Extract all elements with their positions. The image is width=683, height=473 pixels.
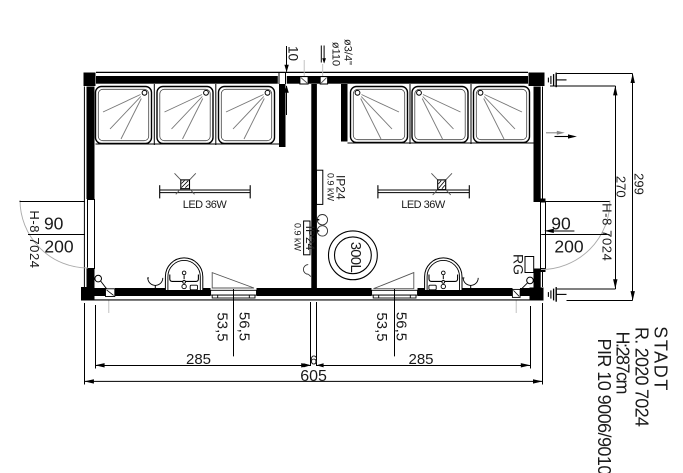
svg-text:STADT: STADT (651, 326, 671, 392)
svg-text:53,5: 53,5 (373, 312, 390, 341)
svg-text:PIR 10 9006/9010: PIR 10 9006/9010 (594, 339, 614, 473)
svg-text:R. 2020 7024: R. 2020 7024 (632, 327, 652, 427)
svg-text:RG: RG (510, 254, 526, 275)
svg-text:ø110: ø110 (329, 42, 341, 66)
svg-text:0.9 kW: 0.9 kW (292, 223, 302, 252)
svg-text:H-8 7024: H-8 7024 (27, 210, 42, 268)
svg-text:285: 285 (186, 351, 211, 368)
svg-text:H:287cm: H:287cm (613, 332, 633, 394)
svg-text:53,5: 53,5 (214, 312, 231, 341)
svg-text:299: 299 (631, 173, 646, 195)
svg-text:LED 36W: LED 36W (183, 199, 228, 211)
svg-text:200: 200 (44, 236, 73, 256)
svg-text:90: 90 (44, 213, 64, 233)
svg-text:IP24: IP24 (303, 226, 317, 251)
svg-text:0.9 kW: 0.9 kW (325, 173, 335, 202)
svg-text:605: 605 (300, 368, 327, 385)
svg-text:ø3/4": ø3/4" (342, 39, 354, 65)
svg-text:H-8 7024: H-8 7024 (599, 203, 614, 261)
svg-text:56,5: 56,5 (236, 312, 253, 341)
svg-text:6: 6 (310, 352, 317, 367)
svg-text:10: 10 (286, 46, 301, 61)
svg-text:200: 200 (554, 237, 583, 257)
svg-text:270: 270 (614, 176, 629, 198)
svg-text:LED 36W: LED 36W (401, 199, 446, 211)
svg-text:56,5: 56,5 (393, 312, 410, 341)
svg-text:300L: 300L (347, 242, 364, 273)
svg-text:285: 285 (408, 351, 433, 368)
